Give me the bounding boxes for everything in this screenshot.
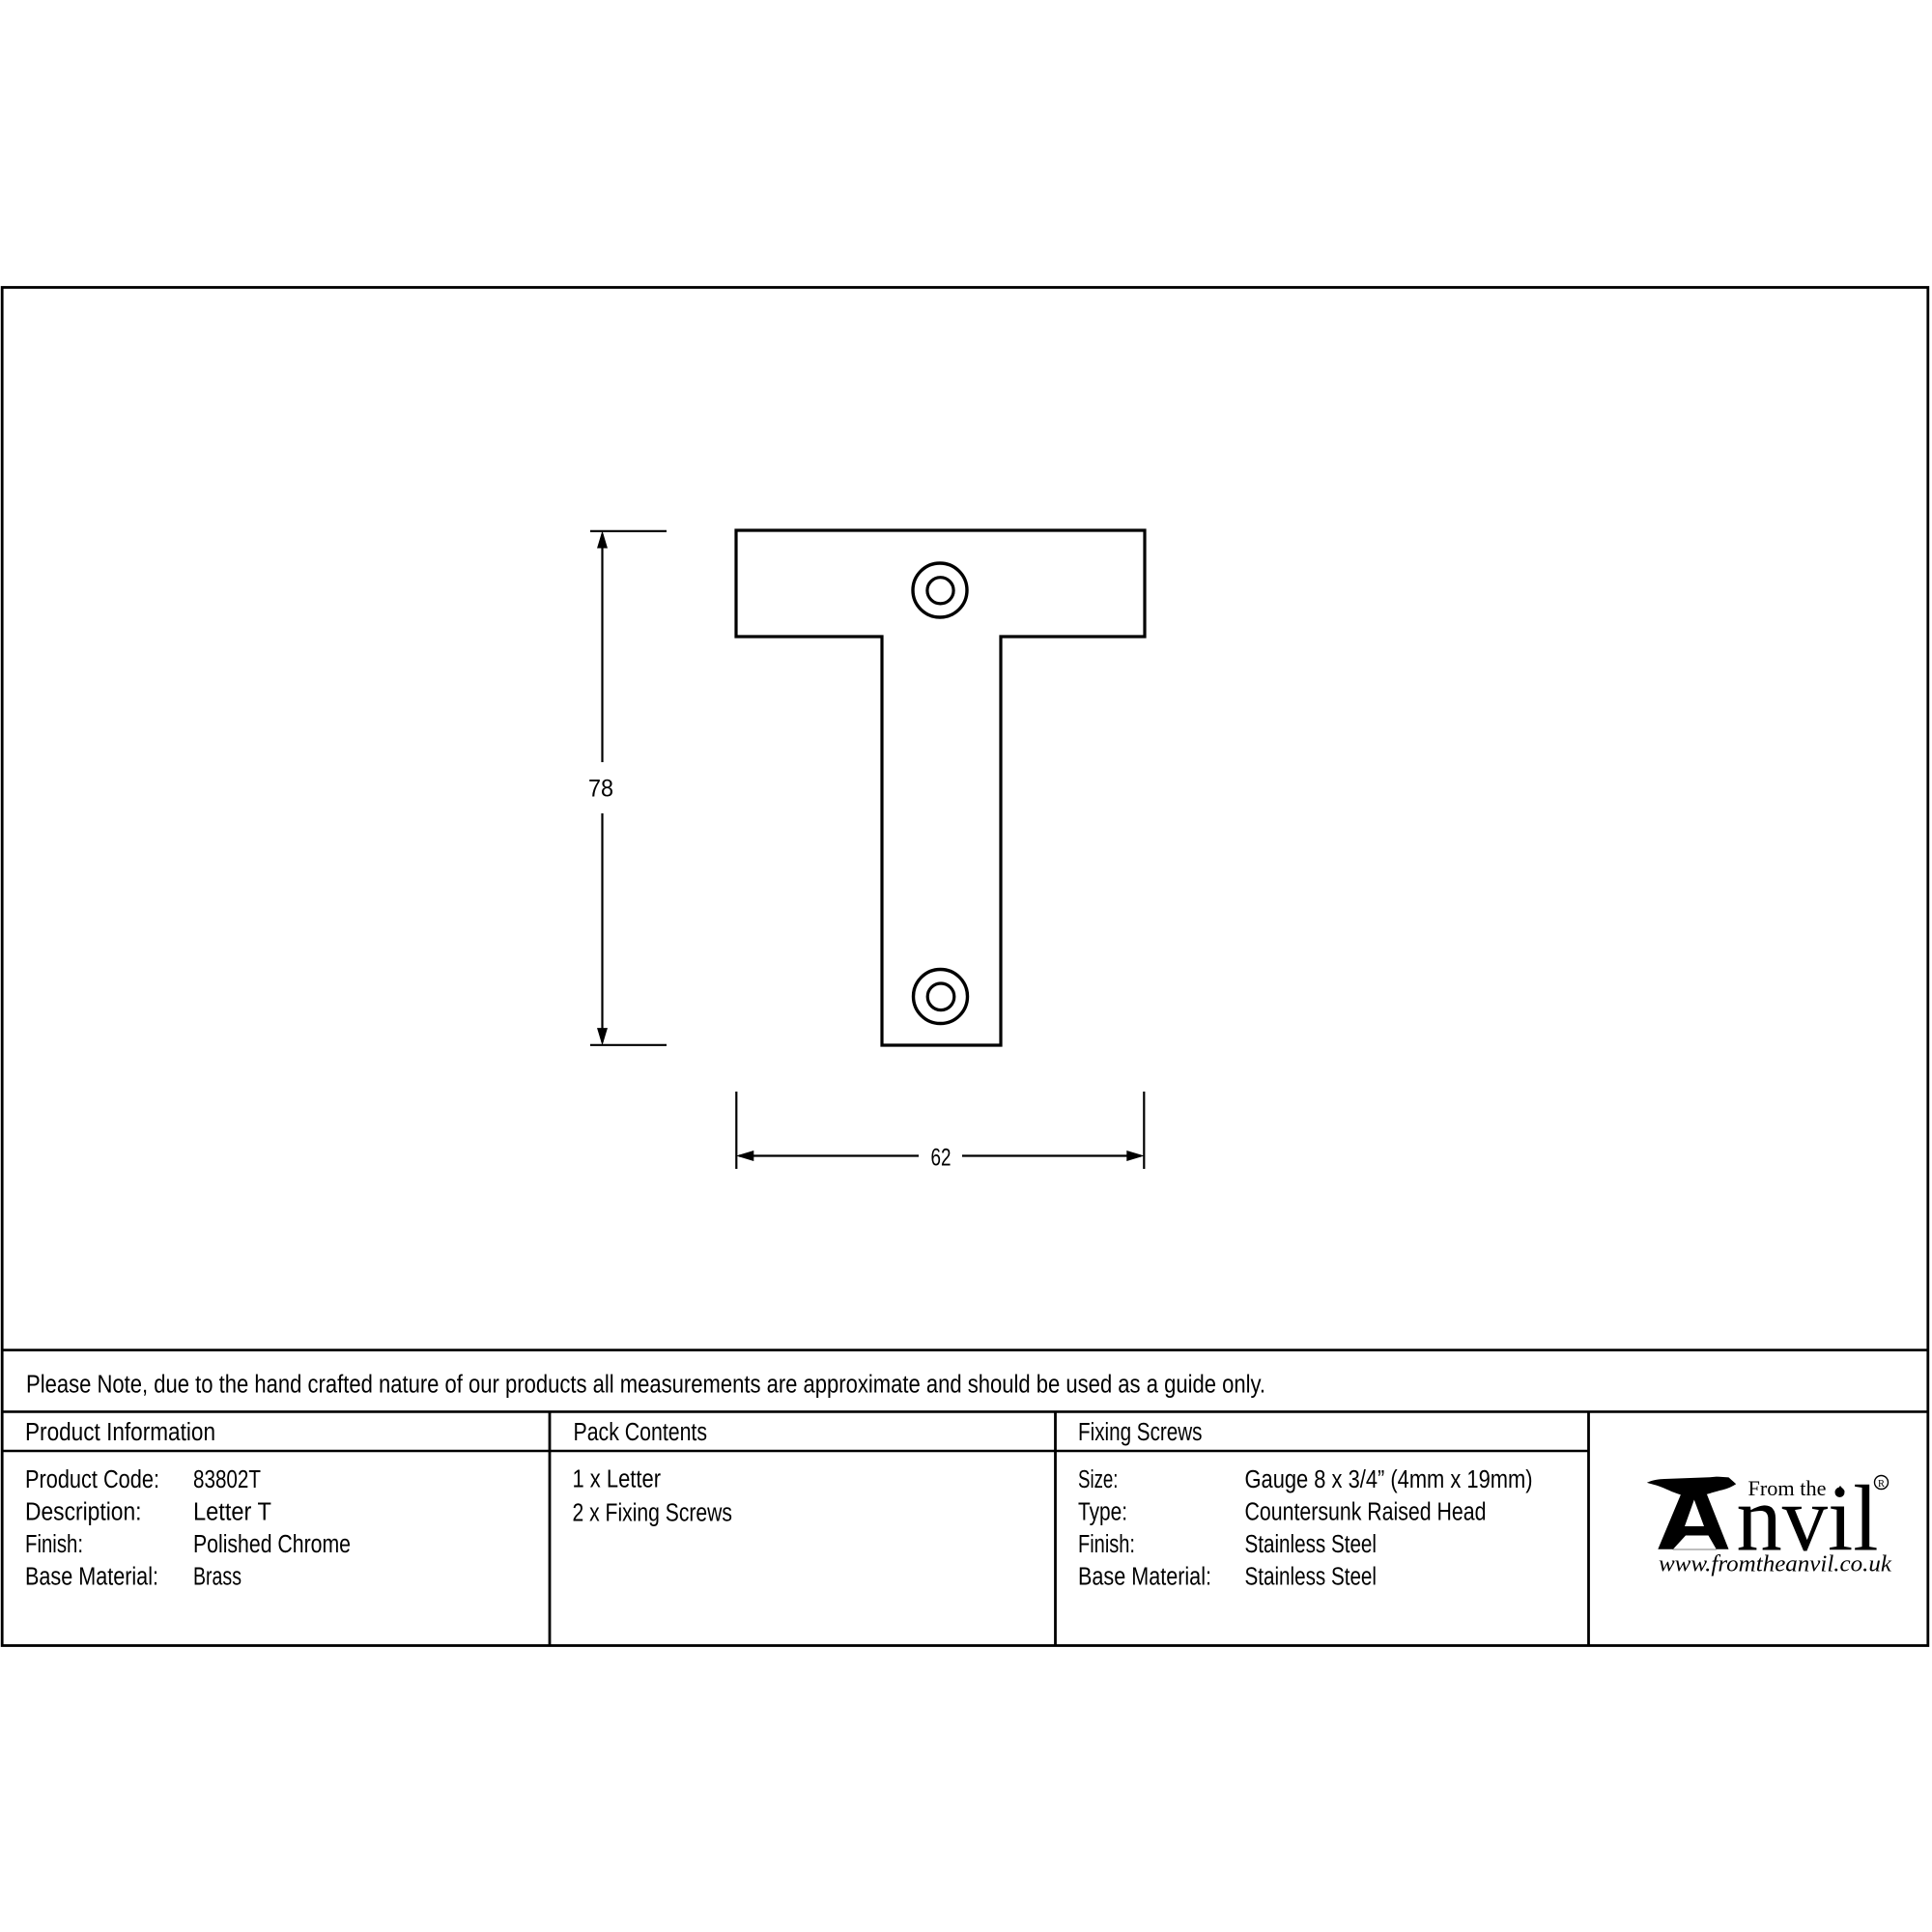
svg-text:83802T: 83802T [193,1466,261,1493]
svg-text:Pack Contents: Pack Contents [574,1419,708,1446]
svg-text:Base Material:: Base Material: [25,1564,158,1591]
svg-text:Brass: Brass [193,1564,241,1591]
svg-text:Letter T: Letter T [193,1499,271,1526]
svg-text:Finish:: Finish: [1078,1531,1135,1558]
svg-text:Description:: Description: [25,1499,142,1526]
svg-text:62: 62 [931,1144,952,1171]
svg-text:Product Information: Product Information [25,1419,215,1446]
svg-text:Base Material:: Base Material: [1078,1564,1211,1591]
svg-text:R: R [1878,1479,1885,1490]
svg-text:Polished Chrome: Polished Chrome [193,1531,351,1558]
svg-text:Fixing Screws: Fixing Screws [1078,1419,1203,1446]
svg-text:2 x Fixing Screws: 2 x Fixing Screws [573,1500,733,1527]
svg-text:78: 78 [588,776,613,803]
svg-text:Finish:: Finish: [25,1531,83,1558]
svg-text:Please Note, due to the hand c: Please Note, due to the hand crafted nat… [26,1372,1265,1399]
svg-text:From the: From the [1748,1476,1827,1500]
svg-text:www.fromtheanvil.co.uk: www.fromtheanvil.co.uk [1659,1551,1892,1577]
svg-text:Size:: Size: [1078,1466,1119,1493]
svg-text:Gauge 8 x 3/4” (4mm x 19mm): Gauge 8 x 3/4” (4mm x 19mm) [1245,1466,1533,1493]
svg-text:1 x Letter: 1 x Letter [573,1466,662,1493]
svg-text:Type:: Type: [1078,1499,1127,1526]
svg-text:Product Code:: Product Code: [25,1466,159,1493]
svg-text:Stainless Steel: Stainless Steel [1245,1531,1378,1558]
svg-text:Stainless Steel: Stainless Steel [1245,1564,1378,1591]
svg-text:Countersunk Raised Head: Countersunk Raised Head [1245,1499,1487,1526]
